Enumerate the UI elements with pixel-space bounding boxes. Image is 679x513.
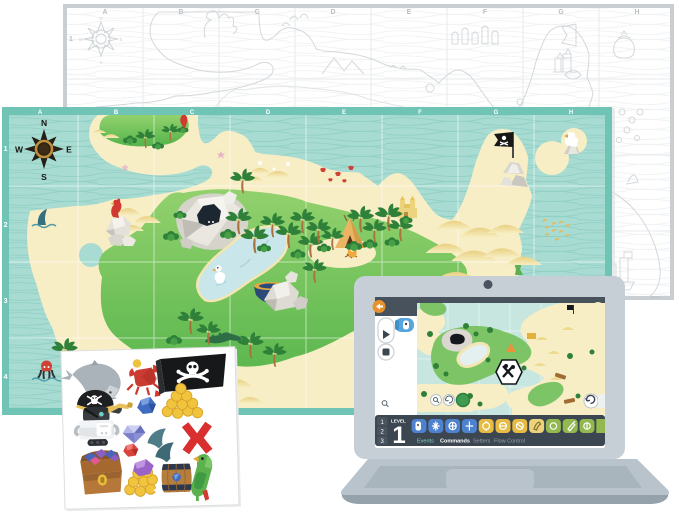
svg-text:Events: Events (417, 439, 434, 445)
svg-text:S: S (99, 60, 102, 65)
svg-text:hmm: hmm (650, 294, 660, 299)
svg-text:F: F (418, 110, 422, 116)
svg-text:1: 1 (69, 36, 73, 43)
svg-text:N: N (41, 118, 47, 128)
svg-text:A: A (38, 110, 43, 116)
svg-text:F: F (483, 9, 488, 16)
svg-text:Flow Control: Flow Control (494, 439, 525, 445)
svg-text:D: D (330, 9, 335, 16)
svg-text:E: E (342, 110, 346, 116)
svg-text:Setters: Setters (473, 439, 491, 445)
svg-text:4: 4 (4, 374, 8, 381)
svg-text:C: C (190, 110, 195, 116)
svg-text:B: B (114, 110, 119, 116)
svg-text:1: 1 (4, 146, 8, 153)
svg-text:N: N (99, 16, 102, 21)
svg-text:2: 2 (4, 222, 8, 229)
svg-text:H: H (634, 9, 639, 16)
svg-text:3: 3 (4, 298, 8, 305)
svg-text:E: E (407, 9, 412, 16)
svg-text:S: S (41, 172, 47, 182)
svg-text:E: E (66, 145, 72, 155)
svg-text:Commands: Commands (440, 439, 470, 445)
svg-text:E: E (119, 37, 122, 42)
svg-text:A: A (102, 9, 107, 16)
svg-text:D: D (266, 110, 271, 116)
svg-text:1: 1 (392, 422, 405, 449)
svg-text:W: W (15, 145, 24, 155)
svg-text:G: G (494, 110, 499, 116)
svg-text:H: H (569, 110, 573, 116)
svg-text:G: G (558, 9, 564, 16)
